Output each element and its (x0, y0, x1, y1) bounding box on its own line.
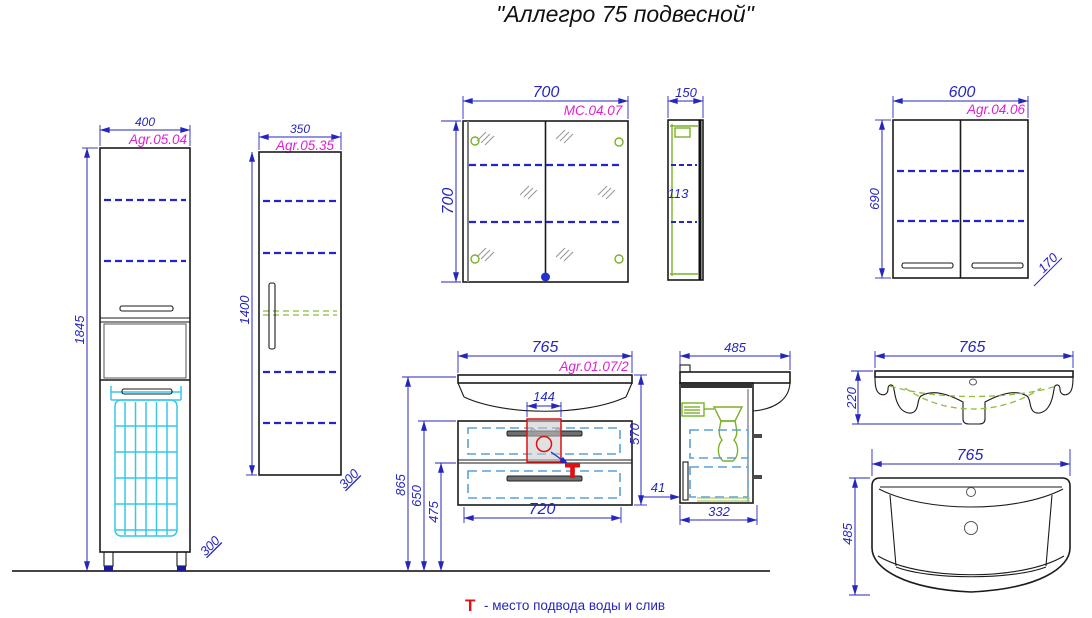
mirror-glass-hatch (598, 186, 615, 199)
mirror-glass-hatch (477, 132, 494, 145)
mirror-side-shelf-dim: 113 (668, 186, 689, 201)
hinge-mark (471, 137, 479, 145)
siphon-zone-dim: 144 (533, 389, 555, 404)
faucet-hole-top (967, 488, 976, 497)
lower-drawer-side-outline (690, 467, 748, 497)
technical-drawing-sheet: "Аллегро 75 подвесной" 400 Agr.05.04 (0, 0, 1092, 618)
legend-text: - место подвода воды и слив (484, 598, 665, 613)
mirror-glass-hatch (556, 248, 573, 261)
basin-inner-upper (879, 489, 1063, 507)
page-title: "Аллегро 75 подвесной" (496, 1, 755, 27)
legend: Т - место подвода воды и слив (465, 596, 665, 615)
vanity-width-dim: 765 (532, 339, 559, 356)
faucet-hole (970, 379, 977, 385)
wall-article-label: Agr.04.06 (966, 102, 1026, 117)
mirror-width-dim: 700 (533, 84, 560, 101)
wall-height-dim: 690 (867, 187, 882, 209)
lower-drawer-outline (468, 471, 620, 498)
wall-bracket (682, 403, 714, 416)
left-leg (104, 552, 113, 566)
mirror-side-depth-dim: 150 (675, 85, 697, 100)
washbasin-top-view: 765 485 (840, 447, 1070, 595)
vanity-side-view: 485 41 332 (640, 340, 790, 525)
wall-depth-dim: 170 (1035, 249, 1061, 275)
legend-symbol: Т (465, 596, 476, 615)
column-cabinet-view: 350 Agr.05.35 1400 300 (237, 122, 362, 492)
vanity-height-dim: 570 (627, 422, 642, 444)
mirror-knob (541, 273, 550, 282)
hinge-mark (615, 138, 623, 146)
tall-door-handle (120, 306, 173, 311)
basin-rim (875, 371, 1073, 377)
vanity-front-view: 765 Agr.01.07/2 144 570 (393, 339, 647, 571)
wall-right-handle (972, 263, 1023, 268)
column-depth-dim: 300 (336, 465, 362, 491)
mirror-article-label: MC.04.07 (564, 103, 623, 118)
basin-bowl-outline-lower (905, 388, 1041, 409)
wall-cabinet-view: 600 Agr.04.06 690 170 (867, 84, 1062, 286)
mirror-cabinet-front-view: 700 MC.04.07 700 (440, 84, 628, 282)
column-door-handle (269, 283, 275, 349)
column-width-dim: 350 (290, 122, 310, 136)
drawing-canvas: "Аллегро 75 подвесной" 400 Agr.05.04 (0, 0, 1092, 618)
basin-front-height-dim: 220 (844, 386, 859, 409)
mount-height-dim: 865 (393, 473, 408, 495)
basin-top-width-dim: 765 (957, 447, 984, 464)
tall-cabinet-view: 400 Agr.05.04 (72, 115, 223, 571)
plinth-lines (697, 498, 750, 501)
vanity-article-label: Agr.01.07/2 (558, 359, 629, 374)
right-leg (177, 552, 186, 566)
side-handle-lower (753, 475, 762, 479)
column-article-label: Agr.05.35 (275, 138, 335, 153)
basin-profile (875, 377, 1073, 424)
mirror-cabinet-side-view: 150 113 (668, 85, 703, 280)
tall-article-label: Agr.05.04 (128, 132, 187, 147)
basin-top-depth-dim: 485 (840, 522, 855, 544)
basin-slab-side (680, 372, 790, 383)
basin-front-width-dim: 765 (959, 339, 986, 356)
basin-overhang-curve (753, 383, 790, 411)
drain-hole (965, 522, 978, 535)
hinge-mark (615, 255, 623, 263)
siphon-trap (714, 407, 742, 461)
upper-drawer-height-dim: 650 (409, 484, 424, 506)
column-height-dim: 1400 (237, 295, 252, 325)
side-handle-upper (753, 434, 762, 438)
mirror-glass-hatch (520, 186, 537, 199)
mirror-glass-hatch (556, 130, 573, 143)
plinth-offset-dim: 41 (651, 480, 665, 495)
tall-depth-dim: 300 (197, 532, 223, 558)
tall-width-dim: 400 (135, 115, 155, 129)
wall-left-handle (902, 263, 953, 268)
basin-front-edge (878, 556, 1064, 575)
vanity-depth-dim: 485 (724, 340, 746, 355)
wall-width-dim: 600 (949, 84, 976, 101)
mirror-height-dim: 700 (440, 188, 457, 215)
laundry-basket (111, 386, 181, 536)
tall-height-dim: 1845 (72, 315, 87, 345)
tall-open-shelf (104, 324, 186, 378)
drawer-width-dim: 720 (529, 501, 556, 518)
washbasin-front-view: 765 220 (844, 339, 1073, 424)
body-depth-dim: 332 (708, 504, 730, 519)
vanity-basin-slab (458, 375, 632, 383)
lower-drawer-height-dim: 475 (426, 500, 441, 522)
